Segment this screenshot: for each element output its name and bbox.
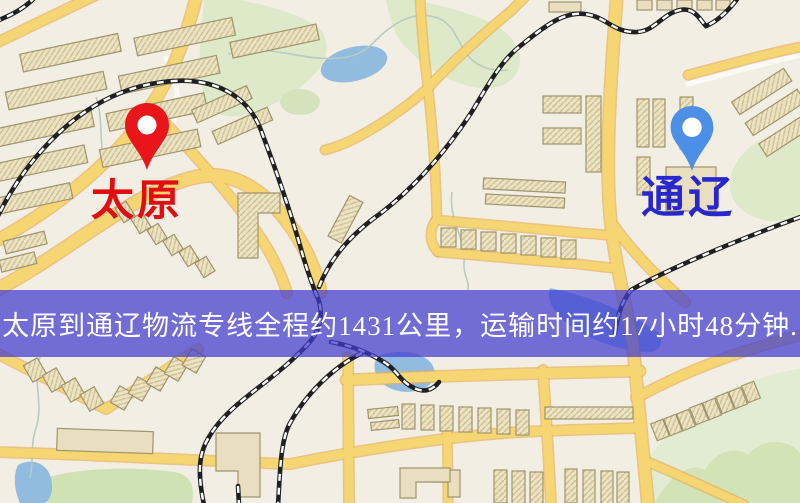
route-info-banner: 太原到通辽物流专线全程约1431公里，运输时间约17小时48分钟. bbox=[0, 290, 800, 357]
destination-city-label: 通辽 bbox=[641, 175, 735, 221]
origin-pin-hole bbox=[138, 116, 157, 135]
destination-pin-hole bbox=[682, 118, 701, 137]
origin-city-label: 太原 bbox=[91, 179, 183, 224]
route-info-text: 太原到通辽物流专线全程约1431公里，运输时间约17小时48分钟. bbox=[0, 290, 800, 357]
map-screenshot: 太原 通辽 太原到通辽物流专线全程约1431公里，运输时间约17小时48分钟. bbox=[0, 0, 800, 503]
map-image bbox=[0, 0, 800, 503]
